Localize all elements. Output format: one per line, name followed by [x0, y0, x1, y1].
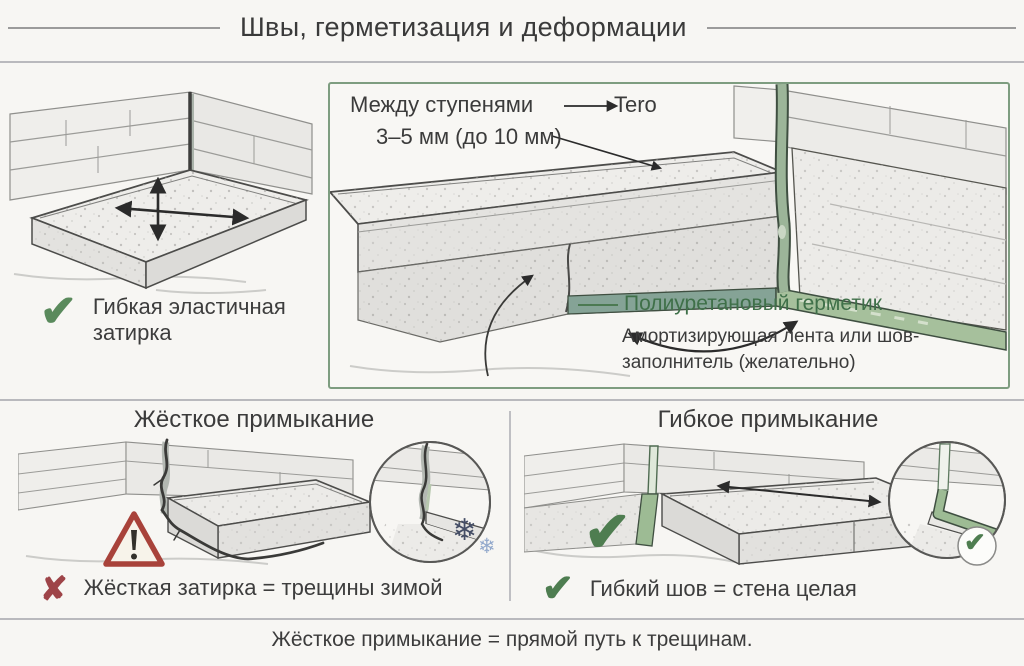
sealant-label: Полиуретановый герметик [624, 292, 882, 316]
rigid-caption-text: Жёсткая затирка = трещины зимой [84, 575, 443, 601]
check-icon: ✔ [40, 290, 77, 334]
check-icon-overlay: ✔ [584, 504, 631, 560]
snowflake-icon-light: ❄ [478, 536, 496, 557]
divider-top [0, 61, 1024, 63]
check-icon: ✔ [542, 570, 574, 608]
flexible-grout-caption: ✔ Гибкая эластичная затирка [40, 294, 286, 347]
flexible-grout-caption-line2: затирка [93, 320, 172, 345]
infographic-page: Швы, герметизация и деформации [0, 0, 1024, 666]
header: Швы, герметизация и деформации [0, 12, 1024, 43]
snowflake-icon-dark: ❄ [452, 516, 477, 546]
cross-icon: ✘ [40, 572, 68, 605]
joint-detail-box: Между ступенями Tero 3–5 мм (до 10 мм) П… [328, 82, 1010, 389]
header-rule-left [8, 27, 220, 29]
gap-size-label: 3–5 мм (до 10 мм) [376, 124, 562, 150]
rigid-caption: ✘ Жёсткая затирка = трещины зимой [40, 572, 443, 605]
divider-bottom [0, 618, 1024, 620]
page-title: Швы, герметизация и деформации [240, 12, 687, 43]
flexible-caption: ✔ Гибкий шов = стена целая [542, 570, 857, 608]
rigid-panel-title: Жёсткое примыкание [0, 406, 508, 434]
ground [532, 550, 744, 564]
tape-label-line1: Амортизирующая лента или шов- [622, 326, 919, 348]
flexible-grout-caption-line1: Гибкая эластичная [93, 294, 286, 319]
header-rule-right [707, 27, 1016, 29]
gap-target-label: Tero [614, 92, 657, 118]
step-movement-illustration [6, 68, 318, 298]
gap-label: Между ступенями [350, 92, 533, 118]
warning-triangle-icon [106, 514, 162, 564]
inset-check-icon: ✔ [964, 529, 986, 555]
footer-note: Жёсткое примыкание = прямой путь к трещи… [0, 628, 1024, 652]
flexible-panel-title: Гибкое примыкание [512, 406, 1024, 434]
rigid-joint-illustration [18, 438, 500, 570]
tape-label-line2: заполнитель (желательно) [622, 352, 856, 374]
flexible-caption-text: Гибкий шов = стена целая [590, 576, 857, 602]
divider-middle [0, 399, 1024, 401]
divider-vertical [509, 411, 511, 601]
